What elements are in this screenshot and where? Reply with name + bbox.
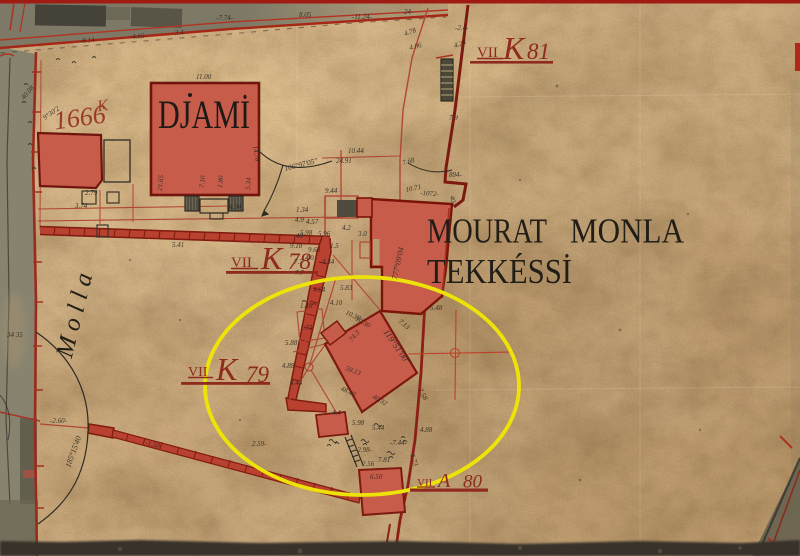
svg-text:4.0: 4.0 [305,254,314,262]
svg-text:3.4: 3.4 [174,28,185,37]
svg-text:K: K [215,351,239,387]
svg-text:4.2: 4.2 [342,224,351,232]
svg-text:4.4: 4.4 [332,409,341,417]
svg-text:2.59-: 2.59- [252,440,267,448]
svg-text:5.34: 5.34 [244,177,253,190]
svg-text:-2.4-: -2.4- [455,24,469,32]
svg-text:K: K [260,240,284,276]
svg-text:1.5: 1.5 [330,242,339,250]
svg-text:4.88: 4.88 [282,362,295,370]
svg-text:5.48: 5.48 [430,304,443,312]
svg-text:4.9: 4.9 [295,216,304,224]
svg-text:8.05: 8.05 [299,11,312,19]
svg-text:24-: 24- [404,8,414,16]
svg-text:2.56: 2.56 [362,460,375,468]
svg-text:K: K [502,30,526,66]
svg-text:DJAMİ: DJAMİ [158,92,250,137]
svg-text:4.94: 4.94 [229,203,242,211]
svg-text:5.96: 5.96 [318,230,331,238]
svg-text:3.0: 3.0 [357,230,367,238]
svg-text:1.34: 1.34 [296,206,309,214]
svg-text:7.7: 7.7 [295,269,304,277]
svg-text:-4.65-: -4.65- [130,32,148,41]
svg-text:4.57: 4.57 [306,218,319,226]
svg-text:5.88: 5.88 [285,339,298,347]
svg-text:-2.98-: -2.98- [355,446,373,454]
svg-text:34 35: 34 35 [6,331,23,339]
svg-text:6.50: 6.50 [370,473,383,481]
svg-text:2.79: 2.79 [85,189,98,197]
svg-text:4.64: 4.64 [313,286,326,294]
svg-text:7.10: 7.10 [198,175,207,188]
svg-text:-1072-: -1072- [420,189,440,198]
svg-text:884-: 884- [449,171,463,179]
svg-text:1.80: 1.80 [216,175,225,188]
svg-text:5.98: 5.98 [352,419,365,427]
svg-text:9.18: 9.18 [290,242,303,250]
svg-text:4.88: 4.88 [420,426,433,434]
svg-text:81: 81 [527,39,550,64]
svg-text:7.81: 7.81 [378,456,390,464]
svg-text:4.44: 4.44 [290,379,303,387]
svg-text:MONLA: MONLA [570,212,685,251]
svg-text:-8.14-: -8.14- [80,36,98,45]
svg-text:40: 40 [296,232,304,240]
svg-text:MOURAT: MOURAT [427,212,547,251]
svg-text:4.10: 4.10 [330,299,343,307]
svg-text:-2.60-: -2.60- [50,417,68,425]
svg-text:-11.24-: -11.24- [352,13,373,21]
svg-text:9.68: 9.68 [308,246,321,254]
svg-text:5.41: 5.41 [172,241,184,249]
svg-text:4.34: 4.34 [322,258,335,266]
svg-text:3.74: 3.74 [74,202,88,210]
svg-text:21.65: 21.65 [156,174,165,191]
svg-text:24.91: 24.91 [336,157,352,165]
svg-text:5.83: 5.83 [340,284,353,292]
svg-text:1.48: 1.48 [300,302,313,310]
svg-text:10.44: 10.44 [348,147,364,155]
svg-text:1.73: 1.73 [300,324,313,332]
svg-text:TEKKÉSSİ: TEKKÉSSİ [427,252,572,291]
svg-text:9.44: 9.44 [325,187,338,195]
svg-text:-7.74-: -7.74- [216,14,234,22]
svg-text:7.7: 7.7 [294,258,303,266]
svg-text:11.00: 11.00 [196,73,212,81]
svg-text:7.9: 7.9 [449,114,458,122]
